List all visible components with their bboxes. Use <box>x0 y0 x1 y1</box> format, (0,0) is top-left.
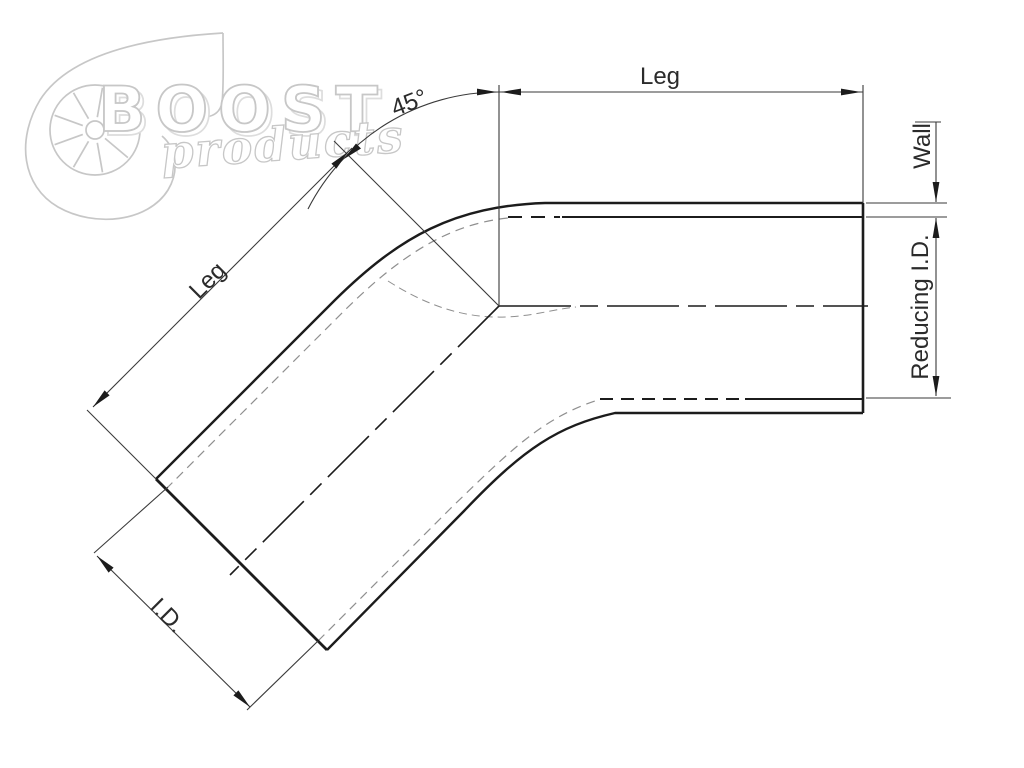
angle-label: 45° <box>388 84 432 122</box>
centerlines <box>230 306 868 575</box>
hidden-bore-lines <box>166 218 598 641</box>
angle-arc-top-arrow <box>477 89 497 96</box>
dimension-arrowheads <box>93 89 939 707</box>
id-label: I.D. <box>145 593 190 638</box>
id-lower-extension-line <box>247 641 318 710</box>
wall-down-arrow <box>933 182 940 202</box>
top-leg-right-arrow <box>841 89 861 96</box>
top-leg-left-arrow <box>501 89 521 96</box>
bore-upper-hidden-line <box>166 218 508 489</box>
leg-diagonal-label: Leg <box>184 257 231 304</box>
watermark-logo: BOOST BOOST products <box>26 33 407 219</box>
elbow-technical-drawing: BOOST BOOST products <box>0 0 1024 768</box>
leg-top-label: Leg <box>640 63 680 90</box>
pipe-outline <box>156 203 863 650</box>
pipe-top-outer-wall <box>156 203 863 479</box>
angle-extension-line <box>334 141 499 306</box>
id-upper-extension-line <box>94 487 168 553</box>
diagonal-leg-centerline <box>230 306 499 575</box>
bore-reducer-hidden-line <box>388 281 576 317</box>
reducing-id-label: Reducing I.D. <box>907 234 934 379</box>
drawing-canvas: BOOST BOOST products <box>0 0 1024 768</box>
dimension-lines <box>87 85 951 710</box>
bore-lower-hidden-line <box>318 400 598 641</box>
wall-label: Wall <box>909 123 936 169</box>
pipe-bottom-outer-wall <box>327 413 863 650</box>
left-face-extension-line <box>87 410 156 479</box>
